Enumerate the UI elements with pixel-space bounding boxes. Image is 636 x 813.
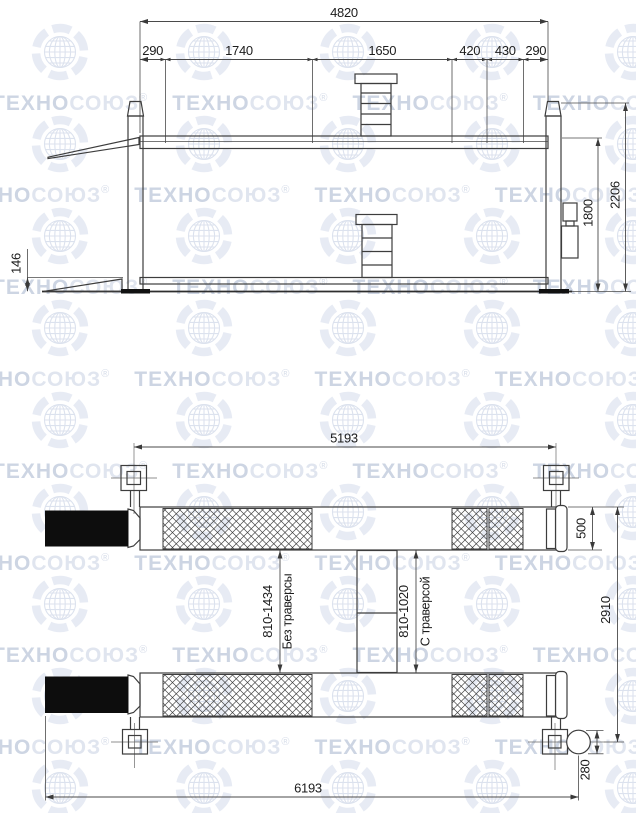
lift-structure-side bbox=[42, 74, 631, 294]
plan-view: 5193 bbox=[45, 431, 624, 801]
dim-with-traverse-label: С траверсой bbox=[419, 576, 433, 646]
power-unit bbox=[567, 730, 591, 754]
side-view: 4820 290 1740 1650 420 430 290 bbox=[9, 5, 632, 294]
dim-with-traverse: 810-1020 С траверсой bbox=[396, 551, 433, 673]
ramp-lowered bbox=[44, 279, 122, 291]
runway-plan-top bbox=[45, 506, 567, 552]
dim-runway-width-label: 500 bbox=[574, 518, 589, 539]
dim-post-span: 5193 bbox=[134, 431, 556, 448]
tread-plate bbox=[452, 509, 487, 550]
ramp-hinge bbox=[128, 509, 140, 548]
dim-segment-4: 430 bbox=[495, 43, 516, 58]
approach-ramp-black bbox=[45, 677, 128, 714]
dim-segment-0: 290 bbox=[142, 43, 163, 58]
left-post-foot bbox=[121, 289, 150, 294]
tread-plate bbox=[489, 675, 523, 717]
dim-without-traverse-label: Без траверсы bbox=[281, 573, 295, 649]
traverse-beam bbox=[357, 551, 397, 673]
dim-segment-2: 1650 bbox=[368, 43, 396, 58]
dim-overall-width: 2910 bbox=[598, 507, 624, 742]
wheel-stop bbox=[556, 506, 568, 552]
ramp-hinge bbox=[128, 675, 140, 714]
tread-plate bbox=[163, 675, 312, 717]
dim-overall-width-label: 2910 bbox=[598, 596, 613, 624]
dim-without-traverse: 810-1434 Без траверсы bbox=[260, 551, 295, 673]
right-post-cap bbox=[545, 102, 561, 117]
runway-lowered bbox=[140, 278, 548, 285]
dim-total-length-label: 6193 bbox=[294, 781, 322, 796]
technical-drawing-page: ТЕХНОСОЮЗ®ТЕХНОСОЮЗ®ТЕХНОСОЮЗ®ТЕХНОСОЮЗ®… bbox=[0, 0, 636, 813]
wheel-stop bbox=[556, 672, 568, 719]
dim-platform-height: 1800 bbox=[562, 138, 602, 292]
dim-motor-label: 280 bbox=[578, 760, 593, 781]
right-post-foot bbox=[539, 289, 569, 294]
tread-plate bbox=[163, 509, 312, 550]
dim-with-traverse-range: 810-1020 bbox=[396, 585, 411, 638]
dim-runway-width: 500 bbox=[568, 507, 624, 550]
dim-total-width-label: 4820 bbox=[330, 5, 358, 20]
runway-plan-bottom bbox=[45, 672, 567, 719]
dim-ramp-height: 146 bbox=[9, 249, 124, 291]
lift-drawing: 4820 290 1740 1650 420 430 290 bbox=[0, 0, 636, 813]
ramp-raised bbox=[48, 138, 139, 159]
dim-without-traverse-range: 810-1434 bbox=[260, 585, 275, 638]
dim-ramp-height-label: 146 bbox=[9, 253, 24, 274]
left-post-cap bbox=[128, 102, 144, 117]
tread-plate bbox=[489, 509, 523, 550]
adapter-stack-raised bbox=[355, 74, 397, 136]
approach-ramp-black bbox=[45, 511, 128, 547]
dim-segment-5: 290 bbox=[525, 43, 546, 58]
dim-segment-1: 1740 bbox=[225, 43, 253, 58]
left-post bbox=[128, 116, 143, 290]
dim-segment-3: 420 bbox=[459, 43, 480, 58]
dim-post-span-label: 5193 bbox=[330, 431, 358, 446]
tread-plate bbox=[452, 675, 487, 717]
dim-post-height-label: 2206 bbox=[608, 181, 623, 209]
dim-total-length: 6193 bbox=[46, 716, 579, 801]
dim-segments: 290 1740 1650 420 430 290 bbox=[140, 43, 548, 143]
adapter-stack-lowered bbox=[356, 215, 397, 278]
dim-post-height: 2206 bbox=[561, 103, 629, 292]
dim-platform-height-label: 1800 bbox=[581, 199, 596, 227]
control-unit bbox=[562, 203, 579, 258]
